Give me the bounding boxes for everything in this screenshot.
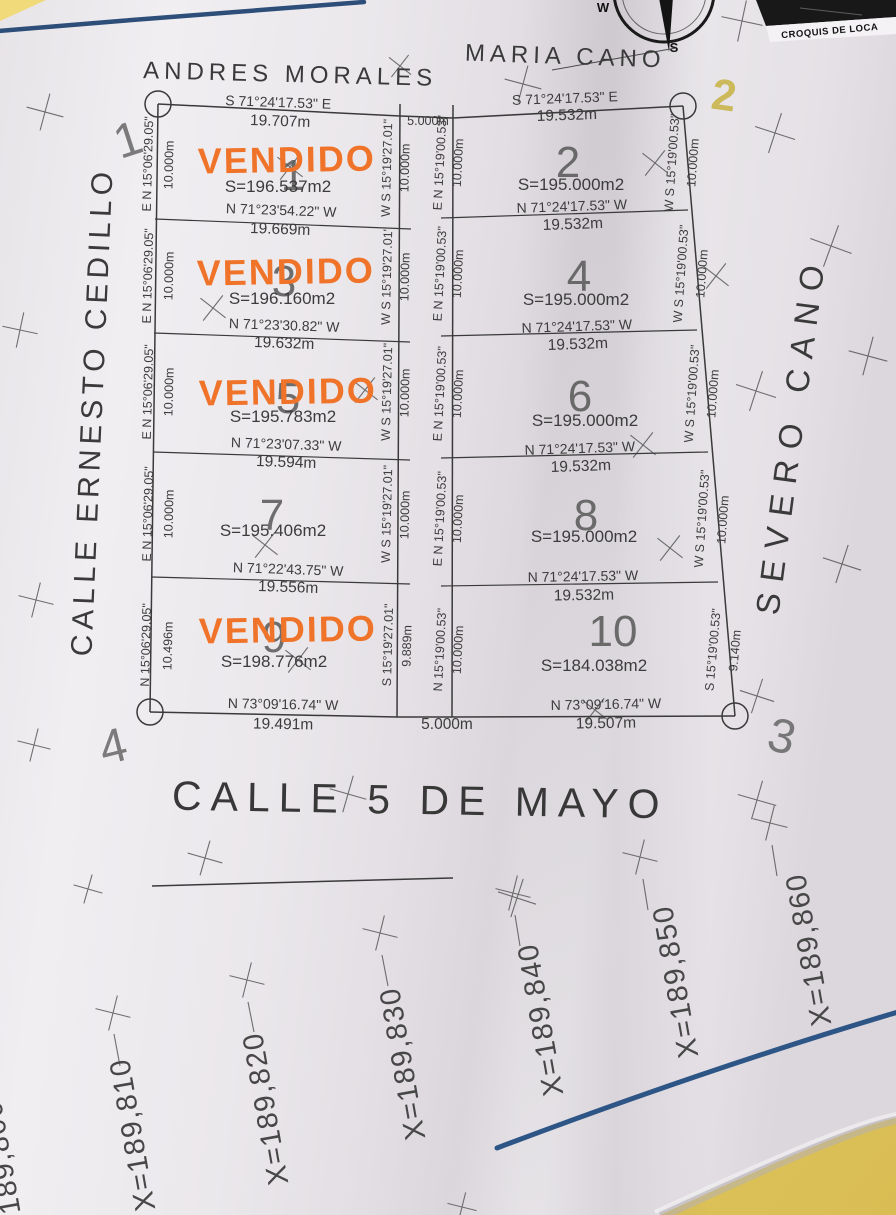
lot-2-bottom-distance: 19.532m bbox=[542, 215, 603, 234]
lot-9-left-distance: 10.496m bbox=[160, 621, 175, 670]
street-5-de-mayo: CALLE 5 DE MAYO bbox=[172, 773, 669, 828]
lot-1-left-distance: 10.000m bbox=[161, 140, 176, 189]
corridor-bottom-width: 5.000m bbox=[421, 716, 473, 733]
lot-9-left-bearing: N 15°06'29.05" bbox=[138, 603, 154, 687]
lot-5-left-bearing: E N 15°06'29.05" bbox=[140, 344, 156, 440]
lot-7-area: S=195.406m2 bbox=[220, 521, 326, 540]
lot-6-bottom-distance: 19.532m bbox=[550, 457, 611, 476]
lot-7-left-distance: 10.000m bbox=[161, 489, 176, 538]
lot-6-left-distance: 10.000m bbox=[450, 369, 467, 418]
lot-9-bottom-distance: 19.491m bbox=[253, 715, 314, 733]
lot-8-bottom-distance: 19.532m bbox=[554, 586, 615, 604]
lot-10-left-distance: 10.000m bbox=[450, 625, 467, 674]
lot-1-top-distance: 19.707m bbox=[250, 112, 311, 131]
lot-1-right-bearing: W S 15°19'27.01" bbox=[379, 119, 396, 217]
lot-5-right-distance: 10.000m bbox=[397, 368, 412, 417]
lot-1-right-distance: 10.000m bbox=[397, 143, 412, 192]
lot-4-area: S=195.000m2 bbox=[523, 290, 629, 309]
lot-7-right-bearing: W S 15°19'27.01" bbox=[379, 465, 396, 563]
lot-1-vendido-stamp: VENDIDO bbox=[197, 137, 376, 181]
lot-8-bottom-bearing: N 71°24'17.53" W bbox=[528, 567, 640, 585]
lot-3-right-distance: 10.000m bbox=[397, 252, 412, 301]
compass-south-label: S bbox=[670, 40, 679, 55]
lot-5-vendido-stamp: VENDIDO bbox=[198, 369, 377, 413]
lot-9-right-bearing: S 15°19'27.01" bbox=[380, 603, 396, 686]
lot-3-right-bearing: W S 15°19'27.01" bbox=[379, 227, 396, 325]
lot-4-left-distance: 10.000m bbox=[450, 249, 467, 298]
lot-2-top-distance: 19.532m bbox=[536, 106, 597, 125]
lot-6-area: S=195.000m2 bbox=[532, 411, 638, 430]
lot-10-bottom-distance: 19.507m bbox=[576, 714, 637, 732]
lot-8-area: S=195.000m2 bbox=[531, 527, 637, 546]
lot-3-bottom-distance: 19.632m bbox=[254, 334, 315, 353]
lot-7-bottom-distance: 19.556m bbox=[258, 578, 319, 597]
lot-9-right-distance: 9.889m bbox=[399, 625, 414, 667]
lot-5-bottom-distance: 19.594m bbox=[256, 453, 317, 472]
lot-10-number: 10 bbox=[589, 607, 638, 656]
lot-9-vendido-stamp: VENDIDO bbox=[198, 607, 377, 651]
lot-1-bottom-distance: 19.669m bbox=[250, 220, 311, 239]
lot-2-area: S=195.000m2 bbox=[518, 175, 624, 194]
lot-3-left-bearing: E N 15°06'29.05" bbox=[140, 228, 156, 324]
lot-7-right-distance: 10.000m bbox=[397, 490, 412, 539]
lot-10-bottom-bearing: N 73°09'16.74" W bbox=[551, 695, 663, 713]
lot-3-vendido-stamp: VENDIDO bbox=[196, 249, 375, 293]
compass-west-label: W bbox=[597, 0, 610, 15]
lot-5-right-bearing: W S 15°19'27.01" bbox=[379, 343, 396, 441]
lot-4-bottom-distance: 19.532m bbox=[547, 335, 608, 354]
lot-10-area: S=184.038m2 bbox=[541, 656, 647, 675]
lot-9-area: S=198.776m2 bbox=[221, 652, 327, 671]
survey-plan-canvas: CROQUIS DE LOCA W S bbox=[0, 0, 896, 1215]
survey-plan-photo: CROQUIS DE LOCA W S bbox=[0, 0, 896, 1215]
lot-5-left-distance: 10.000m bbox=[161, 367, 176, 416]
lot-1-left-bearing: E N 15°06'29.05" bbox=[140, 116, 156, 212]
lot-7-left-bearing: E N 15°06'29.05" bbox=[140, 466, 156, 562]
lot-2-left-distance: 10.000m bbox=[450, 138, 467, 187]
lot-8-left-distance: 10.000m bbox=[450, 494, 467, 543]
lot-9-bottom-bearing: N 73°09'16.74" W bbox=[228, 695, 340, 713]
lot-3-left-distance: 10.000m bbox=[161, 251, 176, 300]
